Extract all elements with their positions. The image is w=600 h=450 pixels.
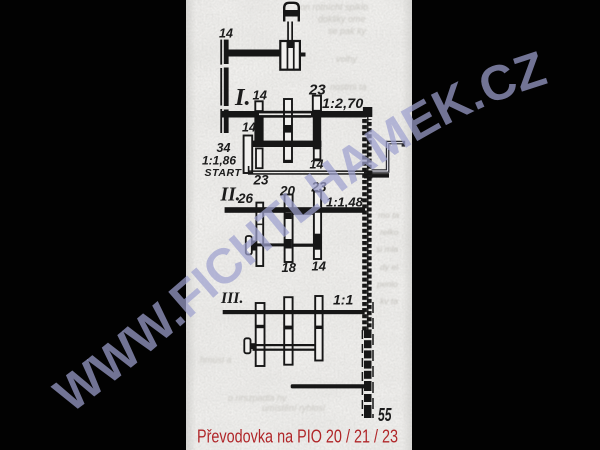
svg-text:relko: relko — [380, 227, 399, 237]
svg-text:o rirszpadla hy: o rirszpadla hy — [228, 393, 287, 403]
svg-text:14: 14 — [312, 259, 327, 274]
svg-text:Převodovka na PIO 20 / 21 / 23: Převodovka na PIO 20 / 21 / 23 — [197, 427, 398, 447]
svg-text:1:2,70: 1:2,70 — [322, 96, 363, 112]
svg-text:se pak ky: se pak ky — [328, 26, 367, 36]
svg-text:18: 18 — [282, 260, 297, 275]
svg-text:umístění ryhlosl: umístění ryhlosl — [262, 403, 326, 413]
svg-text:I.: I. — [234, 84, 251, 111]
svg-text:14: 14 — [242, 121, 256, 135]
svg-text:dy el: dy el — [380, 262, 399, 272]
svg-text:mo ta: mo ta — [378, 210, 400, 220]
svg-text:hmúsl a: hmúsl a — [200, 355, 232, 365]
svg-text:23: 23 — [253, 173, 270, 188]
svg-text:14: 14 — [219, 27, 233, 41]
svg-text:si mla: si mla — [376, 244, 398, 254]
svg-text:1:1: 1:1 — [333, 292, 353, 308]
svg-text:penlo: penlo — [376, 279, 398, 289]
svg-text:kv ta: kv ta — [380, 296, 398, 306]
svg-text:14: 14 — [253, 88, 268, 103]
svg-text:26: 26 — [237, 191, 254, 206]
svg-text:nostmi ta: nostmi ta — [330, 82, 367, 92]
svg-text:dokliky ome: dokliky ome — [318, 14, 366, 24]
svg-text:on rotnícht spiklo: on rotnícht spiklo — [300, 2, 368, 12]
svg-text:55: 55 — [378, 405, 392, 425]
svg-text:volhy: volhy — [336, 54, 358, 64]
svg-text:1:1,86: 1:1,86 — [202, 154, 236, 168]
svg-text:START: START — [205, 167, 243, 179]
